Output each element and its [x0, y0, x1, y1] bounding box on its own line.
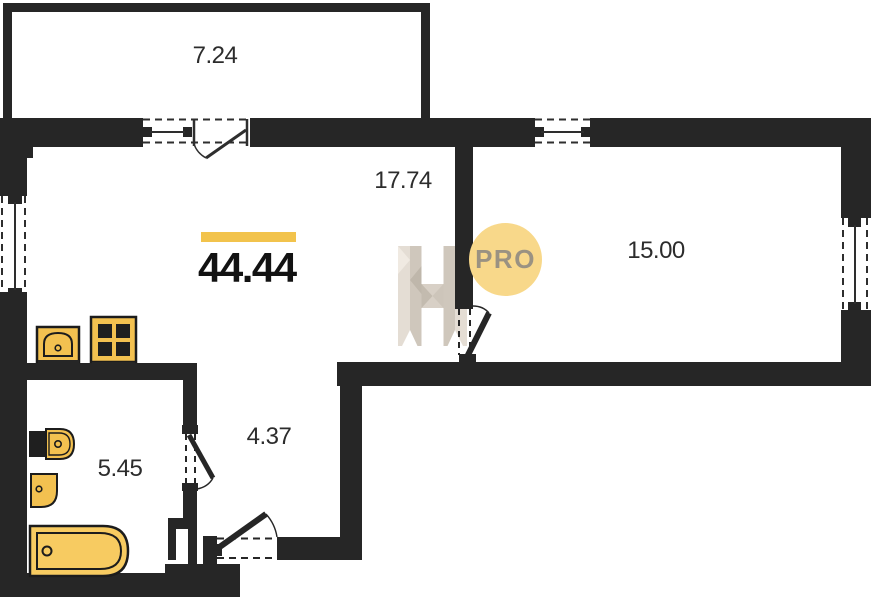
left-window — [2, 195, 25, 297]
entry-door — [209, 514, 277, 558]
balcony-door-swing-arc — [194, 144, 206, 158]
entry-door-leaf — [214, 514, 266, 551]
hallway-area-label: 4.37 — [234, 423, 304, 451]
balcony-window-door — [143, 119, 250, 158]
balcony-area-label: 7.24 — [165, 42, 265, 70]
right-window — [843, 218, 867, 311]
plan-linework — [0, 0, 871, 600]
bathroom-door — [182, 425, 213, 491]
kitchen-sink-icon — [37, 327, 79, 368]
bathroom-door-leaf — [189, 435, 213, 478]
living-area-label: 17.74 — [363, 167, 443, 195]
toilet-icon — [29, 429, 74, 459]
washbasin-icon — [31, 474, 57, 507]
entry-door-swing-arc — [266, 514, 277, 537]
top-window — [535, 120, 590, 143]
bathroom-door-swing-arc — [197, 478, 213, 489]
bathroom-area-label: 5.45 — [85, 455, 155, 483]
total-area-label: 44.44 — [198, 247, 296, 289]
room-door — [455, 300, 489, 363]
bathtub-icon — [30, 526, 128, 576]
stove-icon — [91, 317, 136, 368]
pro-badge: PRO — [469, 223, 542, 296]
total-area-underline — [201, 232, 296, 242]
bedroom-area-label: 15.00 — [606, 237, 706, 265]
balcony-door-leaf — [206, 130, 246, 158]
floor-plan: PRO 44.44 7.24 17.74 15.00 4.37 5.45 — [0, 0, 871, 600]
pro-badge-label: PRO — [475, 244, 536, 275]
